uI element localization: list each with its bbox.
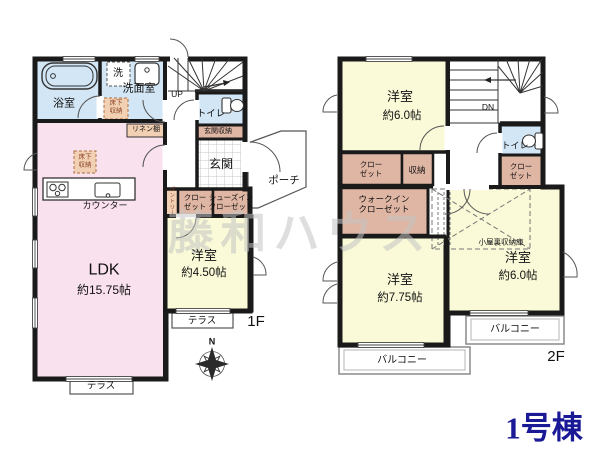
walkin-closet-label: ウォークイン クローゼット — [358, 194, 409, 214]
room-label-bedroom-bottom: 洋室 — [387, 272, 413, 288]
room-label-entrance: 玄関 — [209, 157, 233, 171]
room-label-bedroom-br: 洋室 — [505, 250, 531, 266]
floor-2f-label: 2F — [547, 348, 565, 366]
porch-label: ポーチ — [268, 175, 300, 188]
kitchen-counter-icon — [43, 178, 135, 200]
bedroom-tl-size-label: 約6.0帖 — [383, 110, 422, 124]
room-label-bedroom-1f: 洋室 — [191, 248, 217, 264]
room-label-washroom: 洗面室 — [123, 82, 156, 95]
stairs-down-label: DN — [482, 102, 494, 112]
closet-2f-right-label: クロー ゼット — [510, 162, 533, 180]
room-label-bedroom-tl: 洋室 — [387, 89, 413, 105]
bedroom-1f-size-label: 約4.50帖 — [181, 267, 226, 281]
closet-2f-left-label: クロー ゼット — [360, 160, 383, 178]
room-label-ldk: LDK — [88, 260, 119, 279]
pantry-label: パントリー — [168, 186, 175, 216]
balcony-left-label: バルコニー — [377, 355, 427, 367]
ldk-size-label: 約15.75帖 — [77, 283, 131, 297]
stairs-1f — [168, 58, 243, 91]
compass-icon — [195, 347, 229, 381]
floor-1f-label: 1F — [247, 313, 265, 331]
bedroom-bottom-size-label: 約7.75帖 — [377, 292, 422, 306]
attic-storage-label: 小屋裏収納庫 — [479, 238, 524, 247]
ldk-underfloor-label: 床下 収納 — [79, 154, 92, 171]
counter-label: カウンター — [82, 201, 127, 212]
shoes-closet-label: シューズイン クローゼット — [209, 193, 254, 211]
washer-label: 洗 — [113, 68, 123, 80]
bedroom-br-size-label: 約6.0帖 — [499, 270, 538, 284]
closet-1f-label: クロー ゼット — [184, 193, 207, 211]
room-label-toilet-2f: トイレ — [501, 141, 528, 152]
linen-shelf-label: リネン棚 — [132, 126, 160, 134]
balcony-right-label: バルコニー — [490, 324, 540, 336]
stairs-2f — [450, 59, 543, 123]
compass-north-label: N — [209, 337, 216, 348]
stairs-up-label: UP — [171, 89, 183, 99]
building-name: 1号棟 — [505, 403, 583, 448]
terrace-bottom-label: テラス — [87, 380, 115, 391]
entrance-storage-label: 玄関収納 — [204, 128, 232, 136]
room-label-bath: 浴室 — [53, 97, 75, 110]
terrace-right-label: テラス — [188, 315, 216, 326]
floor-plan: 藤和ハウス 浴室 洗 洗面室 床下 収納 リネン棚 UP トイレ 玄関収納 玄関… — [0, 0, 600, 450]
storage-2f-label: 収納 — [408, 165, 425, 175]
underfloor-storage-label: 床下 収納 — [110, 100, 123, 117]
room-label-toilet-1f: トイレ — [197, 108, 226, 119]
